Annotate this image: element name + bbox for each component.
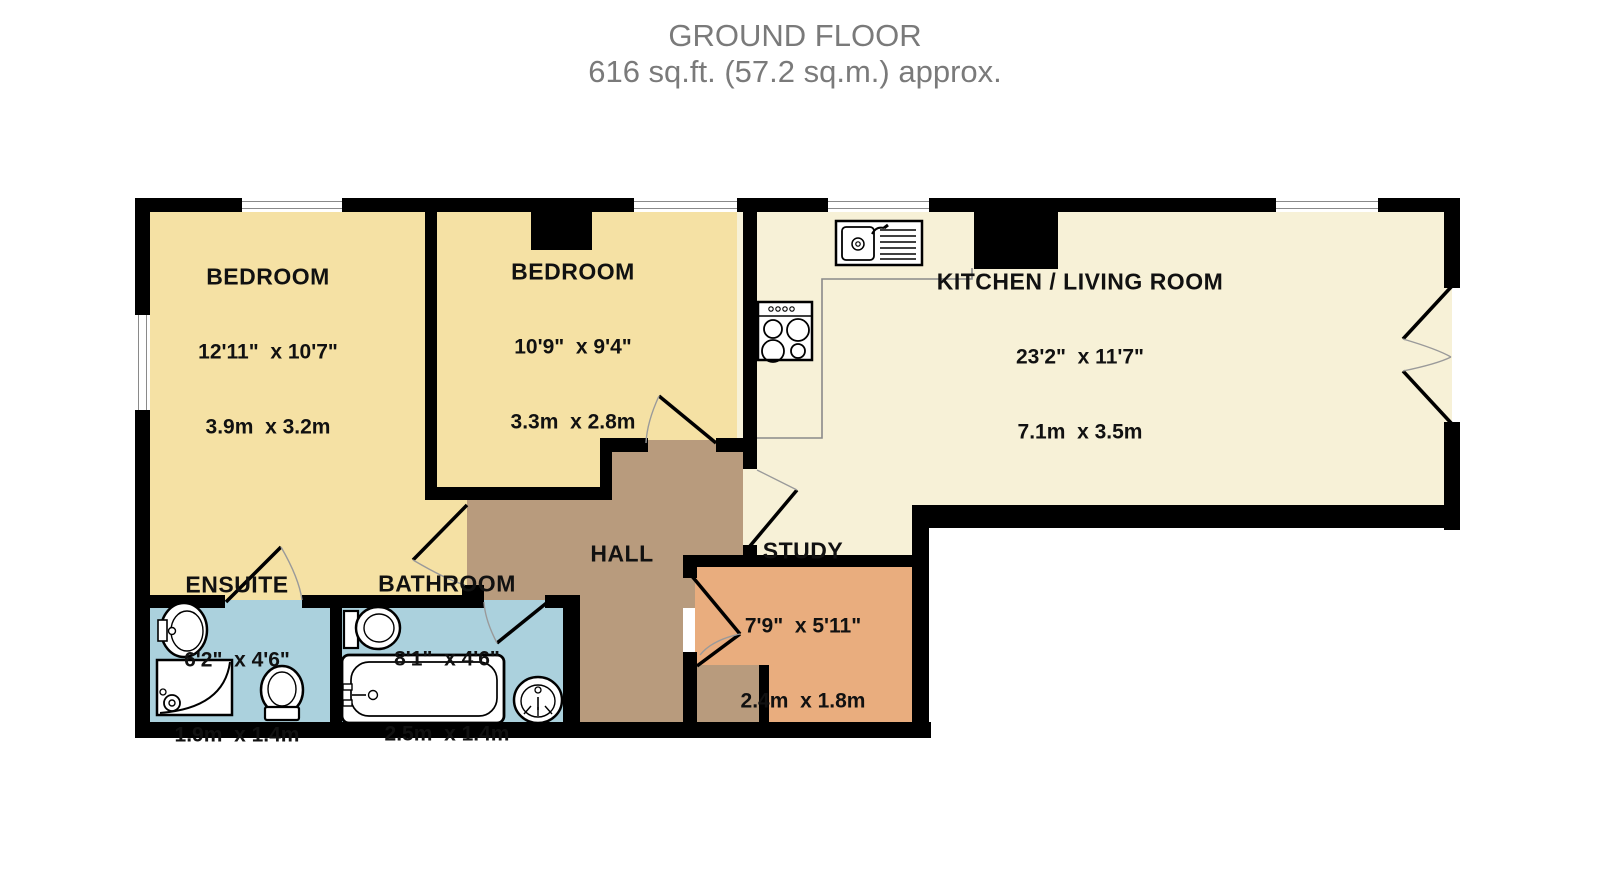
room-dims-imperial: 23'2" x 11'7" — [937, 345, 1224, 370]
room-name: ENSUITE — [175, 573, 300, 598]
label-bedroom-1: BEDROOM 12'11" x 10'7" 3.9m x 3.2m — [198, 215, 338, 490]
window-bedroom1-top — [242, 198, 342, 212]
label-study: STUDY 7'9" x 5'11" 2.4m x 1.8m — [741, 489, 866, 764]
wall-bedroom2-bottom — [425, 487, 612, 500]
window-kitchen-top-left — [828, 198, 929, 212]
floorplan-page: GROUND FLOOR 616 sq.ft. (57.2 sq.m.) app… — [0, 0, 1600, 888]
room-dims-imperial: 6'2" x 4'6" — [175, 648, 300, 673]
wall-kitchen-right-lower — [1444, 422, 1460, 530]
room-name: KITCHEN / LIVING ROOM — [937, 270, 1224, 295]
wall-bathroom-right — [563, 595, 580, 738]
room-name: BEDROOM — [511, 260, 636, 285]
wall-ensuite-bathroom-divider — [330, 595, 342, 738]
wall-kitchen-right-upper — [1444, 198, 1460, 288]
room-name: BEDROOM — [198, 265, 338, 290]
label-ensuite: ENSUITE 6'2" x 4'6" 1.9m x 1.4m — [175, 523, 300, 798]
room-name: BATHROOM — [378, 572, 516, 597]
wall-study-left-upper — [683, 567, 697, 578]
window-kitchen-top-right — [1276, 198, 1378, 212]
window-bedroom1-left — [135, 315, 150, 410]
room-dims-imperial: 10'9" x 9'4" — [511, 335, 636, 360]
room-name: HALL — [590, 542, 653, 567]
label-bathroom: BATHROOM 8'1" x 4'6" 2.5m x 1.4m — [378, 522, 516, 797]
room-dims-metric: 2.5m x 1.4m — [378, 722, 516, 747]
wall-outer-left — [135, 198, 150, 738]
room-dims-metric: 2.4m x 1.8m — [741, 689, 866, 714]
room-dims-imperial: 8'1" x 4'6" — [378, 647, 516, 672]
floorplan: BEDROOM 12'11" x 10'7" 3.9m x 3.2m BEDRO… — [0, 0, 1600, 888]
room-name: STUDY — [741, 539, 866, 564]
room-dims-metric: 3.3m x 2.8m — [511, 410, 636, 435]
room-dims-metric: 3.9m x 3.2m — [198, 415, 338, 440]
wall-kitchen-bottom — [912, 505, 1460, 528]
label-kitchen-living-room: KITCHEN / LIVING ROOM 23'2" x 11'7" 7.1m… — [937, 220, 1224, 495]
wall-study-left-lower — [683, 652, 697, 738]
room-dims-imperial: 12'11" x 10'7" — [198, 340, 338, 365]
window-bedroom2-top — [634, 198, 737, 212]
wall-study-right — [912, 505, 929, 738]
room-dims-metric: 7.1m x 3.5m — [937, 420, 1224, 445]
room-dims-imperial: 7'9" x 5'11" — [741, 614, 866, 639]
label-hall: HALL — [590, 492, 653, 617]
wall-bedroom2-kitchen — [743, 198, 757, 469]
room-dims-metric: 1.9m x 1.4m — [175, 723, 300, 748]
label-bedroom-2: BEDROOM 10'9" x 9'4" 3.3m x 2.8m — [511, 210, 636, 485]
wall-bedroom2-door-stub — [716, 438, 743, 452]
wall-bedroom-divider — [425, 212, 437, 500]
